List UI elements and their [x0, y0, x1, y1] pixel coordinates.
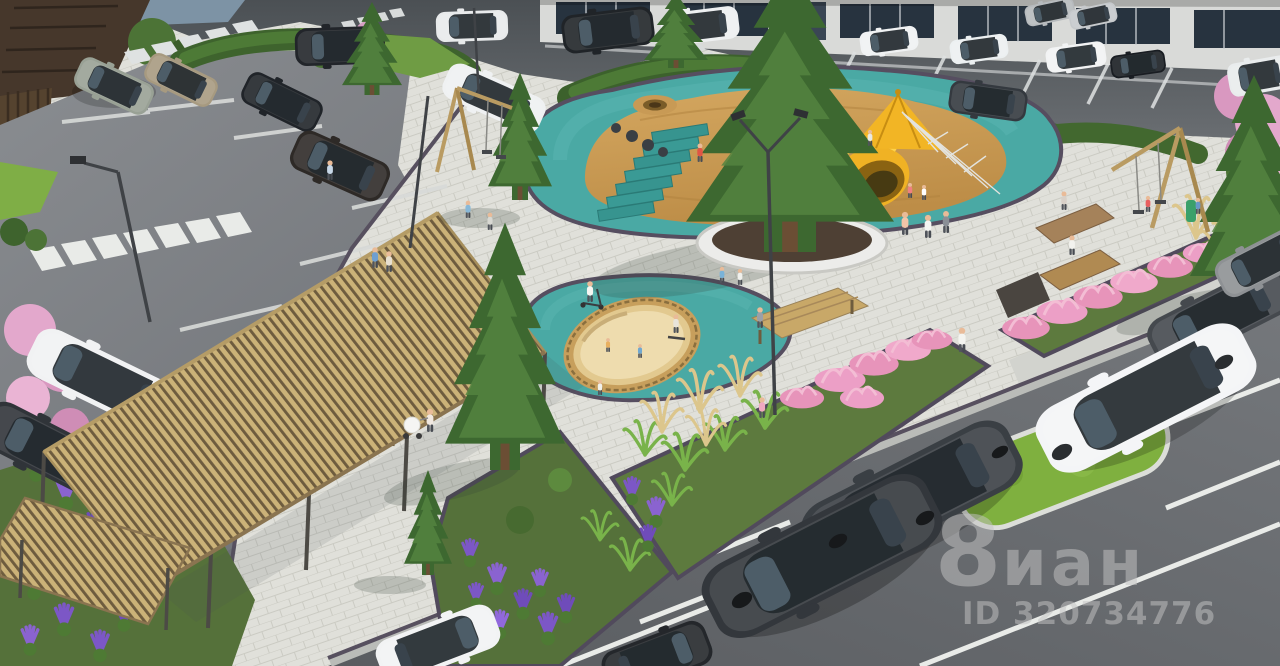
- sand-play-circle: [633, 95, 677, 115]
- car: [435, 7, 508, 45]
- watermark-logo-icon: 8: [935, 496, 1002, 608]
- watermark-logo-word: иан: [1002, 527, 1146, 601]
- scene-render: 8 иан ID 320734776: [0, 0, 1280, 666]
- courtyard-render: 8 иан ID 320734776: [0, 0, 1280, 666]
- watermark-id: ID 320734776: [962, 596, 1216, 632]
